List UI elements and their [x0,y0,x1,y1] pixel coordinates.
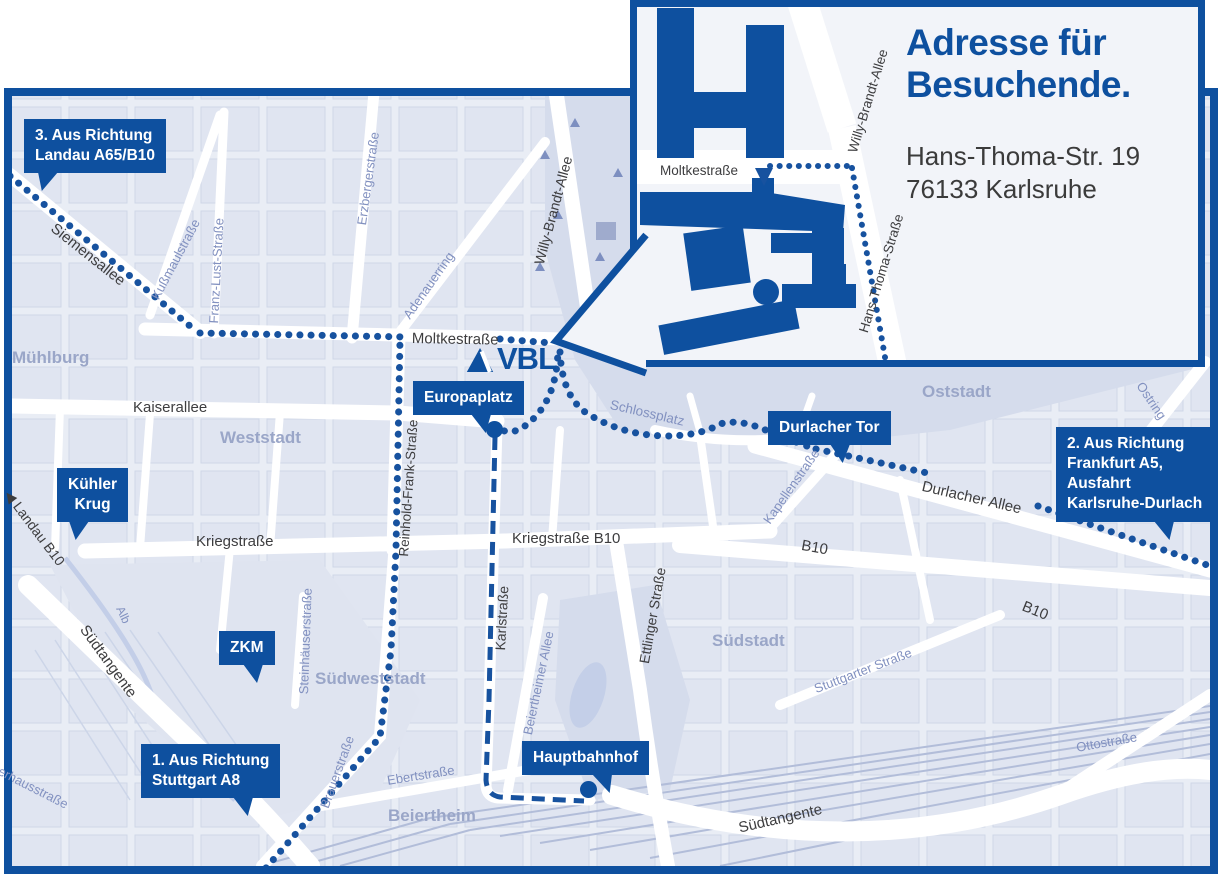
vbl-triangle-icon [466,347,494,373]
address-line2: 76133 Karlsruhe [906,173,1206,206]
inset-address: Hans-Thoma-Str. 19 76133 Karlsruhe [906,140,1206,207]
vbl-logo: VBL [466,344,556,373]
address-line1: Hans-Thoma-Str. 19 [906,140,1206,173]
inset-heading: Adresse für Besuchende. [906,22,1206,106]
page: { "colors":{"accent":"#0e509f","map_bg":… [0,0,1230,874]
vbl-logo-text: VBL [497,344,556,373]
